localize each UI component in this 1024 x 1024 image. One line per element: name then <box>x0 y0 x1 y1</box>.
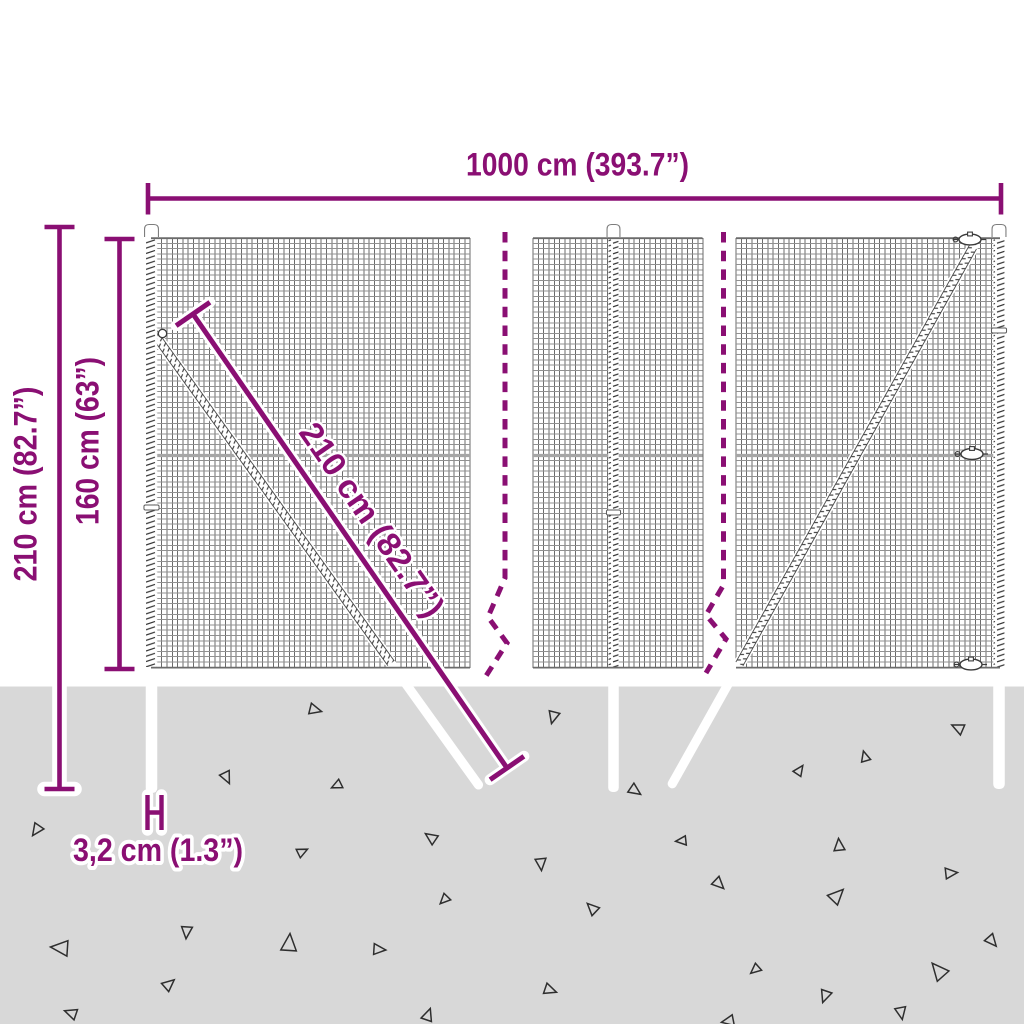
svg-text:1000 cm (393.7”): 1000 cm (393.7”) <box>466 147 689 183</box>
svg-text:3,2 cm (1.3”): 3,2 cm (1.3”) <box>73 832 243 868</box>
svg-text:210 cm (82.7”): 210 cm (82.7”) <box>8 387 44 582</box>
svg-text:160 cm (63”): 160 cm (63”) <box>70 357 106 525</box>
